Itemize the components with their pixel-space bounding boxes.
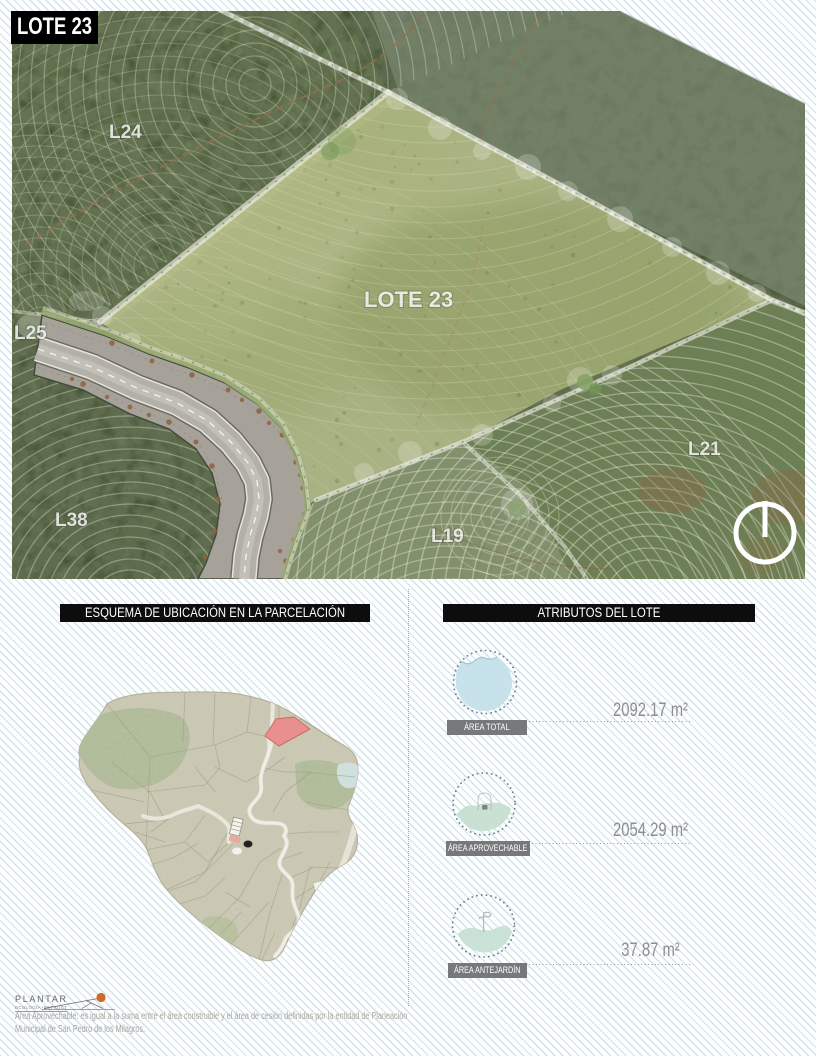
svg-text:L25: L25 [14,323,47,344]
svg-text:L24: L24 [109,122,142,143]
svg-text:L38: L38 [55,510,88,531]
svg-text:L21: L21 [688,439,721,460]
svg-text:LOTE 23: LOTE 23 [364,287,453,312]
svg-text:L19: L19 [431,526,464,547]
